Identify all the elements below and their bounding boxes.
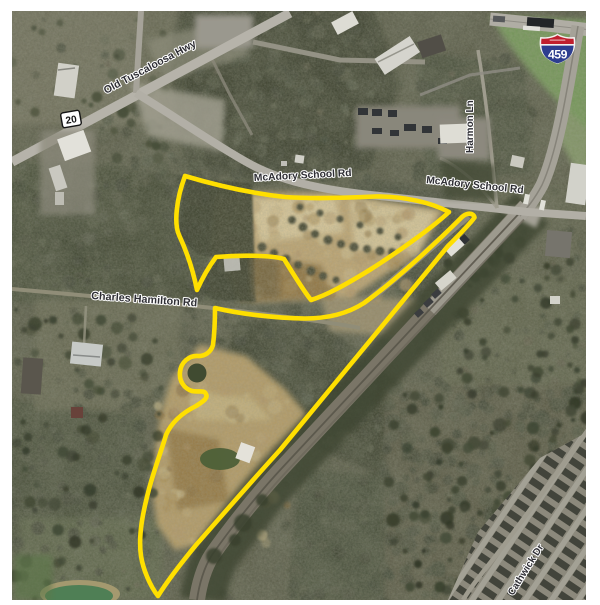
svg-text:Harmon Ln: Harmon Ln [465,100,476,153]
svg-text:459: 459 [548,48,568,62]
